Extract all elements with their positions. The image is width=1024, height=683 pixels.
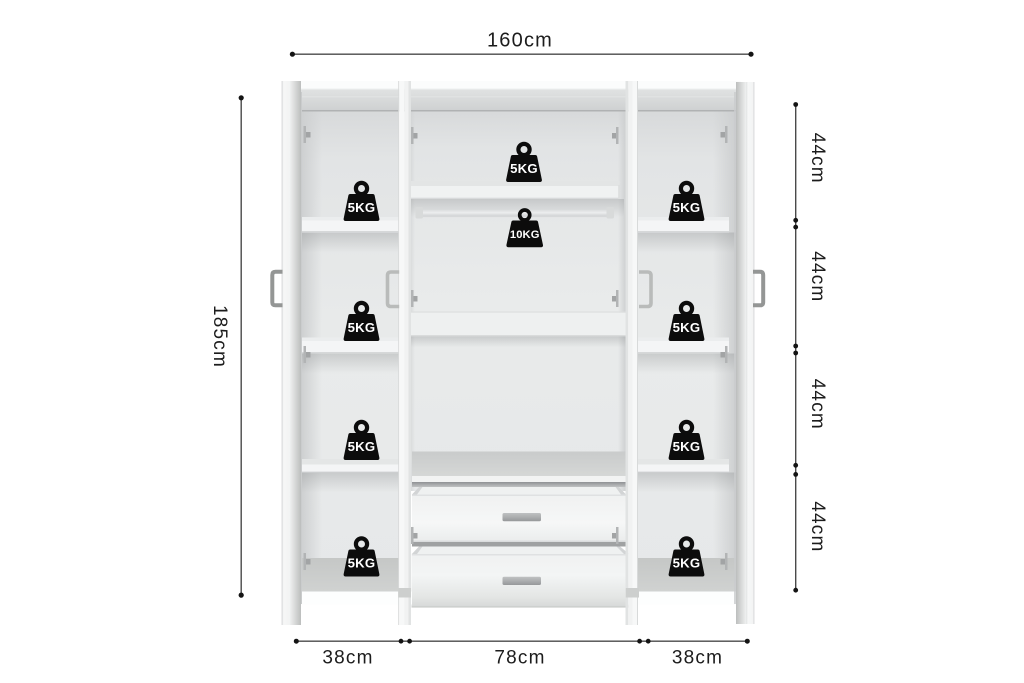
svg-text:38cm: 38cm (672, 648, 723, 669)
svg-text:44cm: 44cm (807, 133, 828, 184)
svg-text:44cm: 44cm (807, 501, 828, 552)
svg-text:160cm: 160cm (487, 30, 553, 52)
svg-text:10KG: 10KG (510, 229, 540, 241)
svg-text:44cm: 44cm (807, 251, 828, 302)
svg-text:185cm: 185cm (209, 305, 230, 368)
svg-text:44cm: 44cm (807, 379, 828, 430)
svg-text:38cm: 38cm (322, 648, 373, 669)
svg-text:78cm: 78cm (494, 648, 545, 669)
